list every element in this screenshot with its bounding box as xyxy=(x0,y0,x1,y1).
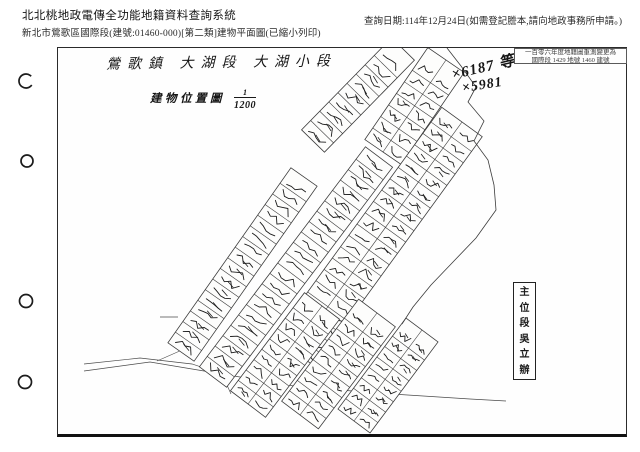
punch-marks xyxy=(16,71,35,388)
scale-fraction: 1 1200 xyxy=(231,82,259,111)
surveyor-stamp: 主 位 段 吳 立 辦 xyxy=(513,282,536,380)
page: { "header": { "system_title": "北北桃地政電傳全功… xyxy=(0,0,640,452)
renumber-stamp-line1: 一百零六年度地籍圖重測變更為 xyxy=(515,49,626,57)
map-hand-title: 鶯歌鎮 大湖段 大湖小段 xyxy=(106,50,337,73)
renumber-stamp-line2: 國際段 1429 地號 1460 建號 xyxy=(515,57,626,65)
scale-denominator: 1200 xyxy=(231,100,259,111)
renumber-stamp: 一百零六年度地籍圖重測變更為 國際段 1429 地號 1460 建號 xyxy=(514,48,627,64)
location-map-caption: 建物位置圖 xyxy=(150,90,225,106)
map-linework xyxy=(84,38,506,433)
scale-numerator: 1 xyxy=(234,89,256,98)
